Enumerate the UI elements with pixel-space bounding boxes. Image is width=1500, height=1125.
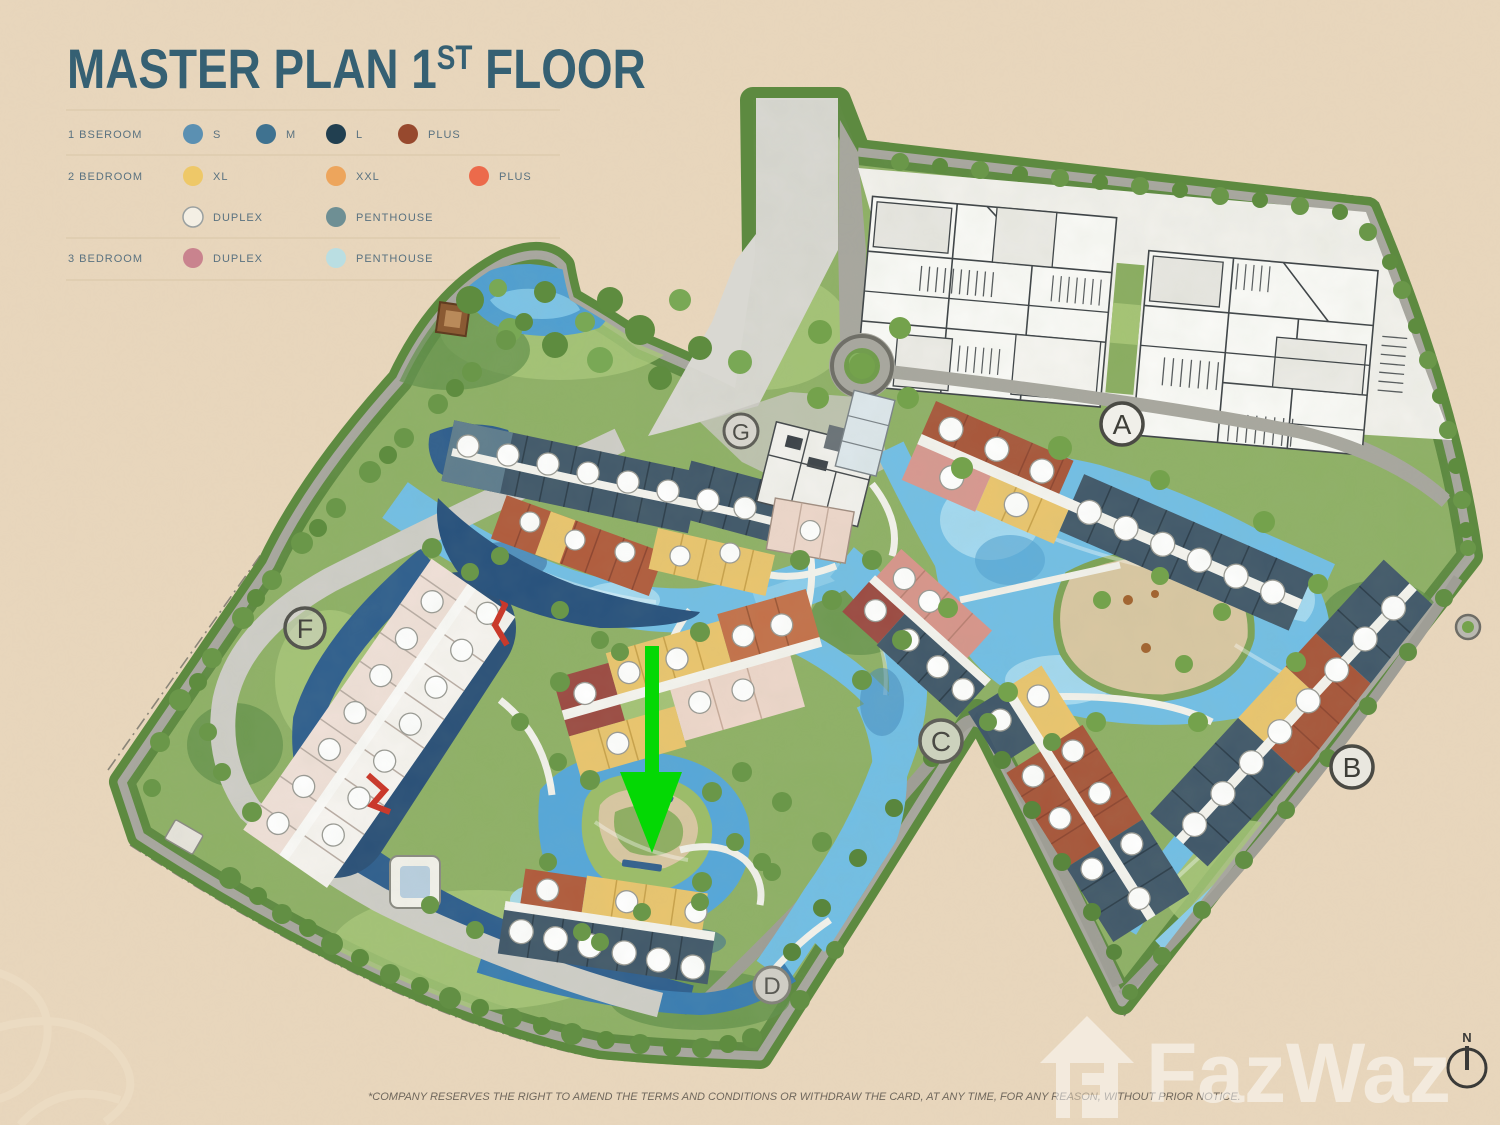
svg-text:PLUS: PLUS xyxy=(428,129,461,141)
svg-text:PENTHOUSE: PENTHOUSE xyxy=(356,253,433,265)
svg-text:C: C xyxy=(931,726,951,757)
svg-text:PENTHOUSE: PENTHOUSE xyxy=(356,212,433,224)
svg-text:B: B xyxy=(1343,752,1362,783)
svg-text:FazWaz: FazWaz xyxy=(1146,1026,1451,1120)
svg-text:DUPLEX: DUPLEX xyxy=(213,253,263,265)
svg-text:2 BEDROOM: 2 BEDROOM xyxy=(68,171,143,183)
svg-text:D: D xyxy=(763,973,780,1000)
svg-text:1 BSEROOM: 1 BSEROOM xyxy=(68,129,142,141)
svg-text:G: G xyxy=(732,419,750,445)
svg-text:L: L xyxy=(356,129,363,141)
svg-text:A: A xyxy=(1113,409,1132,440)
svg-text:PLUS: PLUS xyxy=(499,171,532,183)
svg-text:M: M xyxy=(286,129,296,141)
svg-text:XXL: XXL xyxy=(356,171,380,183)
svg-text:XL: XL xyxy=(213,171,228,183)
svg-text:3 BEDROOM: 3 BEDROOM xyxy=(68,253,143,265)
svg-text:F: F xyxy=(297,614,314,644)
svg-text:DUPLEX: DUPLEX xyxy=(213,212,263,224)
svg-text:S: S xyxy=(213,129,221,141)
svg-text:MASTER PLAN 1ST FLOOR: MASTER PLAN 1ST FLOOR xyxy=(67,38,646,100)
svg-text:N: N xyxy=(1462,1030,1471,1045)
